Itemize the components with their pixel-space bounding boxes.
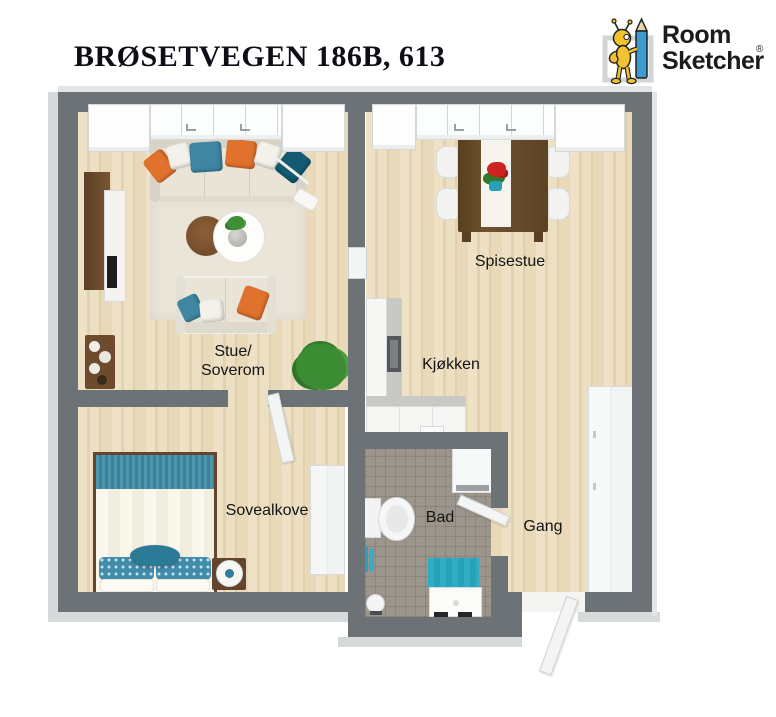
- bed-blanket-striped: [96, 455, 214, 489]
- sofa-back: [185, 322, 267, 333]
- room-label-spisestue: Spisestue: [450, 252, 570, 271]
- window-sill-block: [372, 104, 416, 150]
- sofa-arm: [267, 276, 276, 334]
- room-label-stue: Stue/ Soverom: [175, 342, 291, 380]
- plant-stand: [85, 335, 115, 389]
- window-latch-icon: [240, 124, 250, 131]
- pillow-teal: [189, 141, 223, 173]
- plant-pot-small: [99, 351, 111, 363]
- wall-bevel: [338, 637, 522, 647]
- wall-bathroom-top: [365, 432, 508, 449]
- kitchen-counter-bottom: [366, 396, 466, 406]
- centerpiece-flowers: [487, 162, 506, 177]
- roomsketcher-mascot-icon: [596, 16, 660, 86]
- bed-double: [93, 452, 217, 592]
- table-lamp-center: [225, 569, 234, 578]
- wall-right: [632, 92, 652, 612]
- shower-tray: [429, 587, 482, 617]
- room-label-bad: Bad: [410, 508, 470, 527]
- bed-cushion-dark-teal: [130, 545, 180, 566]
- bed-pillow-white: [100, 579, 154, 592]
- table-vase: [228, 228, 247, 247]
- shower-drain: [453, 600, 459, 606]
- pillow-white: [199, 299, 225, 323]
- window-latch-icon: [506, 124, 516, 131]
- room-label-kjokken: Kjøkken: [391, 355, 511, 374]
- wall-bottom-left: [58, 592, 360, 612]
- sink-base: [370, 611, 382, 615]
- dining-chair: [436, 188, 458, 220]
- room-label-sovealkove: Sovealkove: [207, 501, 327, 520]
- wardrobe-handle: [593, 483, 596, 490]
- bed-pillow-white: [156, 579, 210, 592]
- plant-pot-small: [89, 363, 100, 374]
- wall-bathroom-right-lower: [491, 556, 508, 592]
- kitchen-base-cabinets: [366, 406, 466, 433]
- pillow-orange: [225, 139, 258, 170]
- centerpiece-vase: [489, 181, 502, 191]
- wall-bevel: [578, 612, 660, 622]
- logo-word-room: Room: [662, 22, 764, 48]
- wall-bathroom-right-upper: [491, 432, 508, 508]
- plant-pot-small: [89, 341, 100, 352]
- sofa-front-lip: [160, 196, 296, 202]
- plant-pot-dark: [97, 375, 107, 385]
- wall-bevel: [48, 92, 58, 622]
- window-latch-icon: [186, 124, 196, 131]
- door-panel-kitchen-opening: [348, 247, 367, 279]
- wardrobe-handle: [593, 431, 596, 438]
- wall-sovealkove-top-left: [78, 390, 228, 407]
- window-living: [150, 104, 282, 140]
- roomsketcher-logo: Room Sketcher ®: [596, 14, 772, 92]
- page-title: BRØSETVEGEN 186B, 613: [74, 40, 445, 74]
- dining-chair: [436, 146, 458, 178]
- window-sill-block: [555, 104, 625, 152]
- room-label-stue-line1: Stue/: [175, 342, 291, 361]
- towel-teal: [369, 549, 374, 571]
- washer-door-strip: [456, 485, 489, 491]
- wall-bathroom-bottom: [348, 617, 522, 637]
- floorplan-page: BRØSETVEGEN 186B, 613 Room Sketcher: [0, 0, 776, 717]
- wall-bevel: [48, 612, 368, 622]
- window-dining: [416, 104, 555, 140]
- wall-sovealkove-bathroom: [348, 392, 365, 637]
- bath-mat: [428, 558, 479, 588]
- potted-plant: [296, 344, 346, 390]
- toilet-bowl-inner: [386, 505, 408, 533]
- dining-table: [458, 134, 548, 232]
- window-latch-icon: [454, 124, 464, 131]
- kitchen-tall-cabinet: [366, 298, 387, 398]
- wall-divider-living-dining-upper: [348, 112, 365, 247]
- logo-word-sketcher: Sketcher: [662, 48, 764, 74]
- washing-machine: [452, 447, 493, 493]
- tv-screen: [107, 256, 117, 288]
- window-sill-block: [282, 104, 345, 152]
- wall-bevel: [652, 92, 657, 616]
- wardrobe-gang: [588, 386, 634, 596]
- room-label-stue-line2: Soverom: [175, 361, 291, 380]
- wall-left: [58, 92, 78, 612]
- dining-chair: [548, 188, 570, 220]
- window-sill-block: [88, 104, 150, 152]
- wardrobe-sovealkove: [310, 465, 345, 575]
- room-label-gang: Gang: [503, 517, 583, 536]
- wall-bottom-right: [585, 592, 652, 612]
- wall-divider-living-dining-lower: [348, 277, 365, 392]
- registered-mark: ®: [756, 44, 763, 55]
